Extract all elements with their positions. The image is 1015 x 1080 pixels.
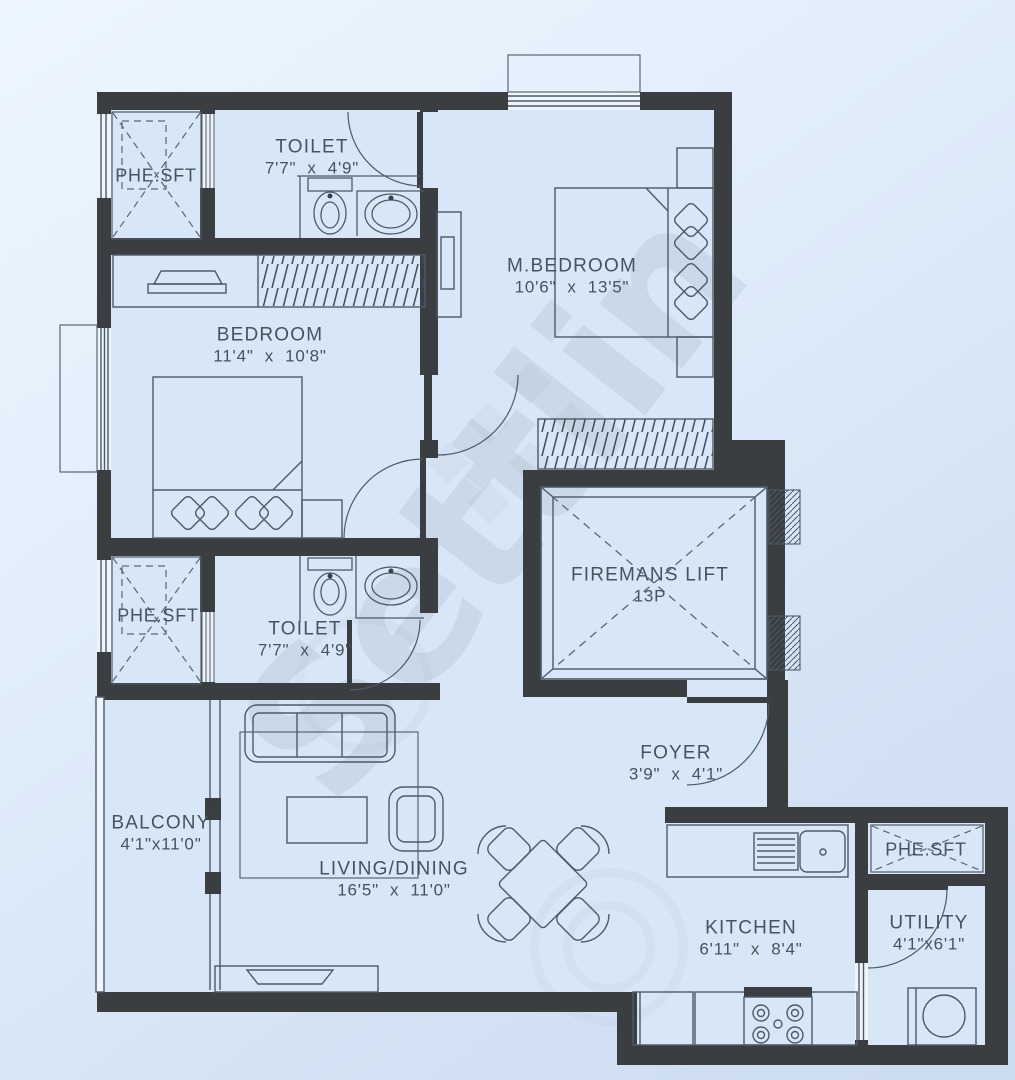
lift-jamb xyxy=(769,616,800,670)
pillow xyxy=(673,225,710,262)
room-dims: 11'4" x 10'8" xyxy=(213,346,326,366)
toilet2-fixtures xyxy=(300,556,424,622)
room-dims: 16'5" x 11'0" xyxy=(319,880,469,900)
pillow xyxy=(170,495,207,532)
room-name: LIVING/DINING xyxy=(319,858,469,880)
room-dims: 6'11" x 8'4" xyxy=(699,939,802,959)
window-chajja xyxy=(60,325,97,472)
pillow xyxy=(234,495,271,532)
pillow xyxy=(673,262,710,299)
dining-chair xyxy=(554,895,602,943)
room-label-phe-sft-2: PHE.SFT xyxy=(117,606,199,627)
side-table xyxy=(677,148,713,188)
side-table xyxy=(677,337,713,377)
room-name: KITCHEN xyxy=(699,917,802,939)
kitchen-sink xyxy=(800,831,845,872)
room-dims: 7'7" x 4'9" xyxy=(265,158,359,178)
side-table xyxy=(302,500,342,538)
room-name: FIREMANS LIFT xyxy=(571,564,729,586)
wc-tank xyxy=(308,558,352,570)
pillow xyxy=(194,495,231,532)
room-label-bedroom: BEDROOM 11'4" x 10'8" xyxy=(213,324,326,365)
bed xyxy=(153,377,302,538)
pier-louver-1 xyxy=(200,114,215,188)
room-label-utility: UTILITY 4'1"x6'1" xyxy=(889,912,968,953)
dresser xyxy=(148,284,226,293)
room-dims: 13P xyxy=(571,586,729,606)
sofa xyxy=(245,705,395,762)
room-name: BEDROOM xyxy=(213,324,326,346)
toilet1-door-arc xyxy=(348,112,422,186)
lift-jamb xyxy=(769,490,800,544)
room-name: PHE.SFT xyxy=(117,606,199,627)
floor-plan: Settlin xyxy=(0,0,1015,1080)
pillow xyxy=(673,202,710,239)
room-dims: 4'1"x11'0" xyxy=(111,834,210,854)
room-label-living-dining: LIVING/DINING 16'5" x 11'0" xyxy=(319,858,469,899)
room-label-phe-sft-3: PHE.SFT xyxy=(885,840,967,861)
living-furniture xyxy=(215,705,443,992)
room-name: PHE.SFT xyxy=(115,166,197,187)
mbedroom-window xyxy=(508,55,640,110)
mbedroom-tv-unit xyxy=(437,212,461,317)
window-chajja xyxy=(508,55,640,92)
room-name: FOYER xyxy=(629,742,723,764)
room-label-toilet-1: TOILET 7'7" x 4'9" xyxy=(265,136,359,177)
sink-drain xyxy=(820,849,826,855)
room-label-foyer: FOYER 3'9" x 4'1" xyxy=(629,742,723,783)
sink-drainboard xyxy=(754,833,798,870)
toilet1-fixtures xyxy=(297,176,424,238)
mbedroom-wardrobe xyxy=(538,419,713,469)
pillow xyxy=(673,285,710,322)
room-name: M.BEDROOM xyxy=(507,255,637,277)
utility-door-leaf xyxy=(868,884,948,890)
dresser-top xyxy=(154,271,222,284)
rug xyxy=(240,732,418,878)
balcony-rail xyxy=(96,697,104,992)
room-label-firemans-lift: FIREMANS LIFT 13P xyxy=(571,564,729,605)
main-door-leaf xyxy=(687,697,771,703)
bedroom-door-arc xyxy=(344,459,423,538)
counter-block xyxy=(633,992,693,1045)
washing-machine xyxy=(908,988,976,1045)
room-label-m-bedroom: M.BEDROOM 10'6" x 13'5" xyxy=(507,255,637,296)
bedroom-door-leaf xyxy=(420,458,426,538)
tv xyxy=(247,970,333,984)
dining-chair xyxy=(485,895,533,943)
bedroom-furniture xyxy=(153,377,342,538)
room-name: TOILET xyxy=(258,618,352,640)
armchair xyxy=(389,787,443,851)
dining-chair xyxy=(554,825,602,873)
room-name: PHE.SFT xyxy=(885,840,967,861)
bedroom-window xyxy=(60,325,111,472)
tv-console xyxy=(215,966,378,992)
dining-table xyxy=(498,839,589,930)
room-name: UTILITY xyxy=(889,912,968,934)
room-dims: 3'9" x 4'1" xyxy=(629,764,723,784)
room-dims: 10'6" x 13'5" xyxy=(507,277,637,297)
pillow xyxy=(258,495,295,532)
room-label-kitchen: KITCHEN 6'11" x 8'4" xyxy=(699,917,802,958)
toilet2-door-arc xyxy=(350,620,420,690)
stove xyxy=(744,997,812,1045)
stove-counter xyxy=(695,992,857,1045)
floorplan-drawing xyxy=(0,0,1015,1080)
phe2-louver xyxy=(97,560,111,652)
dining-set xyxy=(478,825,609,943)
mbedroom-door-arc xyxy=(438,375,518,455)
pier-louver-2 xyxy=(200,612,215,682)
coffee-table xyxy=(287,797,367,843)
room-label-balcony: BALCONY 4'1"x11'0" xyxy=(111,812,210,853)
room-label-toilet-2: TOILET 7'7" x 4'9" xyxy=(258,618,352,659)
dining-chair xyxy=(485,825,533,873)
bedroom-wardrobe xyxy=(113,255,425,307)
room-name: TOILET xyxy=(265,136,359,158)
phe1-louver xyxy=(97,114,111,198)
room-dims: 7'7" x 4'9" xyxy=(258,640,352,660)
room-dims: 4'1"x6'1" xyxy=(889,934,968,954)
room-label-phe-sft-1: PHE.SFT xyxy=(115,166,197,187)
wc-tank xyxy=(308,178,352,191)
room-name: BALCONY xyxy=(111,812,210,834)
